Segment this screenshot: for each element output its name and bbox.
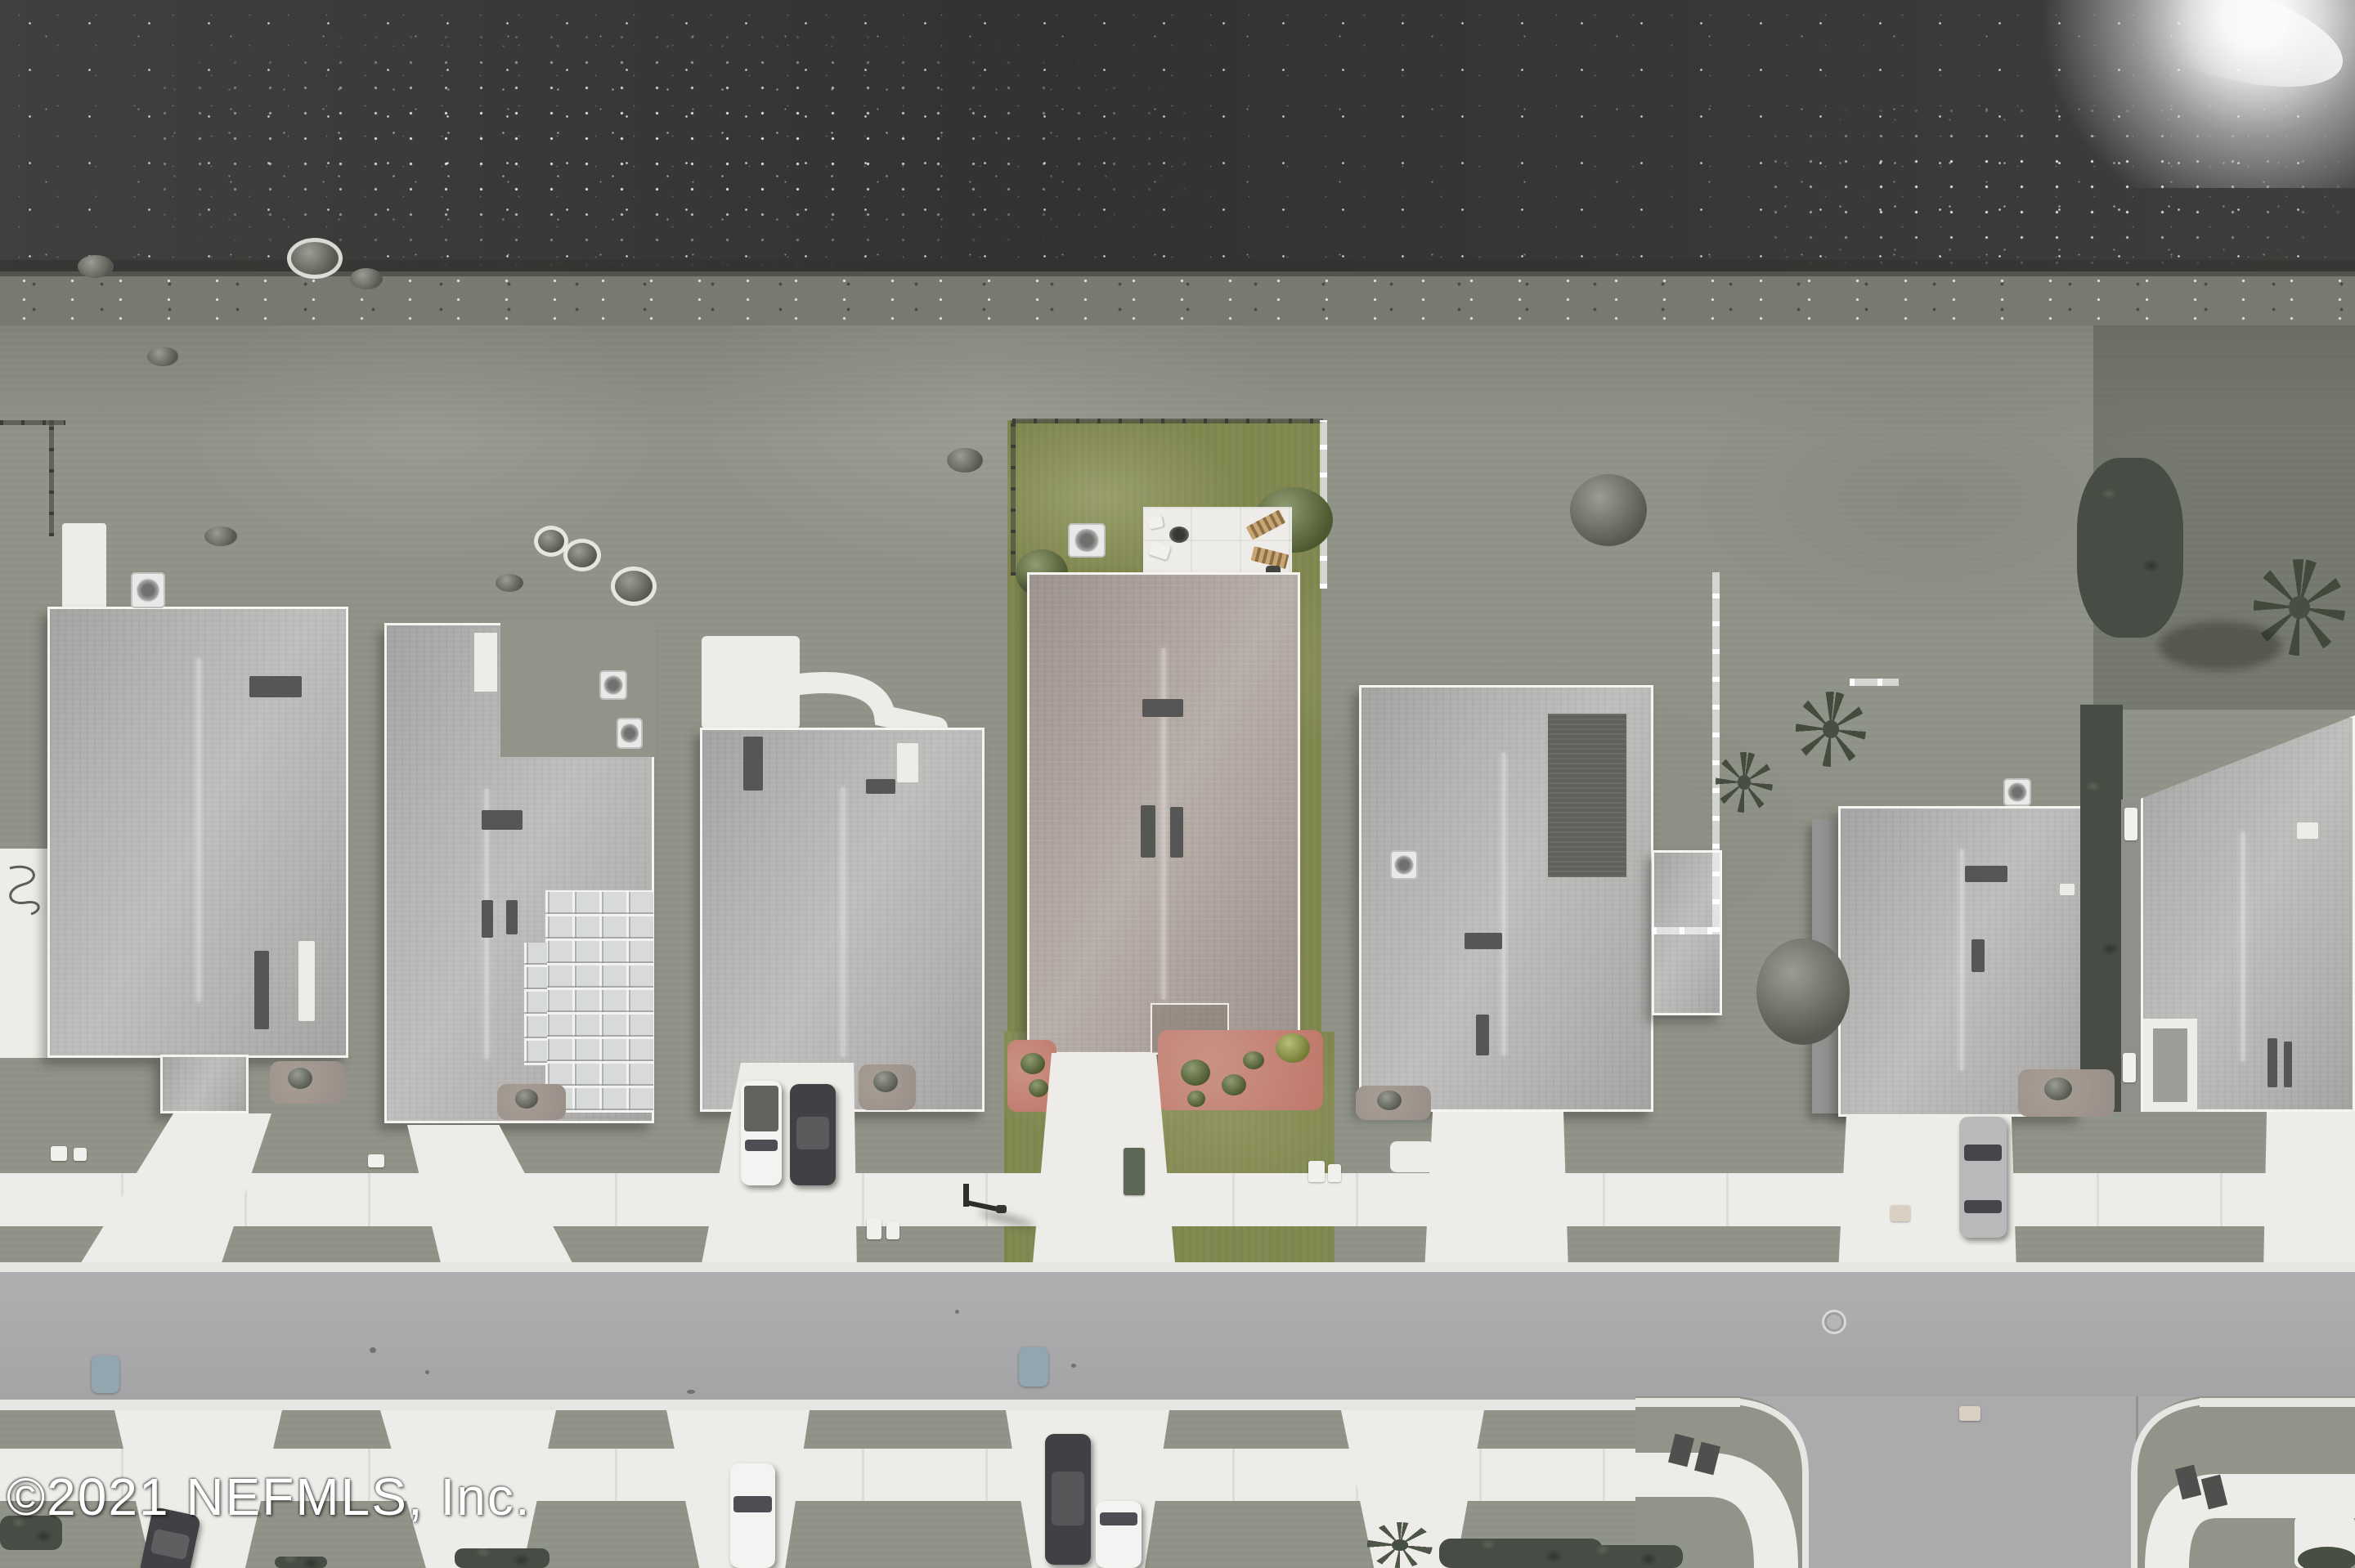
solar-panel-column	[524, 943, 547, 1065]
front-shrub	[1187, 1091, 1205, 1107]
front-shrub-muted	[2044, 1077, 2072, 1100]
utility-cabinet	[1124, 1148, 1145, 1195]
fire-pit	[1169, 526, 1189, 543]
water-sun-glint	[147, 25, 1210, 270]
windshield	[733, 1496, 772, 1512]
garden-hose	[2, 860, 51, 917]
chain-fence-side	[49, 420, 54, 536]
driveway-house-5	[1424, 1112, 1568, 1272]
tee-intersection	[1635, 1396, 2355, 1568]
house-5-side-fence-return	[1652, 927, 1720, 934]
roof-vent	[866, 779, 895, 794]
curb-right	[2200, 1398, 2355, 1407]
car-roof-highlight	[150, 1529, 191, 1560]
roof-vent	[254, 951, 269, 1029]
house-5-ac-unit	[1390, 850, 1418, 880]
hedge-trees-top	[2077, 458, 2183, 638]
shrub	[947, 448, 983, 473]
roof-skylight	[298, 941, 315, 1021]
roof-vent	[1170, 807, 1183, 858]
landscape-circle-shrub	[538, 530, 564, 553]
house-6-ac-unit	[2003, 778, 2031, 806]
bottom-shrub-row	[275, 1557, 327, 1568]
front-shrub	[1029, 1079, 1048, 1097]
road-stain	[955, 1310, 959, 1314]
utility-box	[1328, 1164, 1341, 1182]
windshield	[1964, 1145, 2002, 1161]
landscape-circle-shrub	[291, 242, 339, 275]
palm-tree	[1796, 692, 1866, 767]
front-shrub-bright	[1276, 1033, 1310, 1063]
roof-vent	[2284, 1042, 2292, 1087]
roof-vent	[2268, 1038, 2277, 1087]
skylight-tube	[897, 743, 918, 782]
mls-watermark: ©2021 NEFMLS, Inc.	[7, 1467, 532, 1527]
front-shrub-muted	[515, 1089, 538, 1109]
inset-corner-shadow	[2153, 1028, 2187, 1102]
subject-left-fence	[1011, 420, 1016, 576]
dark-sedan-upper	[790, 1084, 836, 1185]
roof-vent	[249, 676, 302, 697]
utility-box	[886, 1221, 899, 1239]
house-1-roof	[47, 607, 348, 1058]
windshield	[745, 1140, 778, 1151]
truck-bed-cover	[744, 1086, 778, 1131]
roof-ridge	[1502, 753, 1505, 1055]
roof-skylight	[2060, 884, 2075, 895]
roof-skylight	[2297, 822, 2318, 839]
curved-rear-walk-house-3	[777, 646, 965, 736]
house-1-ac-unit	[131, 572, 165, 608]
roof-vent	[482, 810, 523, 830]
blue-bin	[92, 1355, 119, 1393]
house-5-roof	[1359, 685, 1653, 1112]
house-2-chimney	[474, 633, 497, 692]
landscape-circle-shrub	[567, 543, 597, 567]
roof-vent	[1476, 1015, 1489, 1055]
road-stain	[370, 1347, 376, 1353]
subject-house-roof	[1027, 572, 1300, 1055]
front-shrub-muted	[1377, 1091, 1402, 1110]
main-road	[0, 1272, 2355, 1400]
road-stain	[687, 1390, 695, 1394]
house-1-garage-projection	[160, 1055, 249, 1113]
white-car-lower	[730, 1463, 775, 1568]
palm-tree	[1716, 752, 1773, 813]
side-street	[1803, 1396, 2136, 1568]
bottom-shrub-row	[1568, 1545, 1683, 1568]
house-7-side-window	[2124, 808, 2137, 840]
shrub	[496, 574, 523, 592]
palm-shadow	[2159, 621, 2281, 670]
solar-panel-array	[545, 890, 653, 1113]
house-5-side-fence	[1712, 572, 1720, 932]
shrub	[78, 255, 114, 278]
leafy-front-tree	[1756, 939, 1850, 1045]
round-tree	[1570, 474, 1647, 546]
utility-box	[368, 1154, 384, 1167]
roof-vent	[506, 900, 518, 934]
utility-pad	[1891, 1205, 1910, 1221]
front-shrub	[1222, 1074, 1246, 1095]
dark-suv-lower	[1045, 1434, 1091, 1565]
house-2-rear-ac	[599, 670, 627, 700]
roof-vent	[1465, 933, 1502, 949]
bottom-palm	[1367, 1522, 1433, 1568]
house-5-front-walk	[1390, 1141, 1434, 1172]
car-roof-highlight	[796, 1117, 829, 1149]
utility-box	[867, 1218, 881, 1239]
roof-ridge	[197, 658, 200, 1001]
windshield	[1100, 1512, 1137, 1525]
hedge-between-6-and-7	[2080, 705, 2123, 1112]
suv-roof-rails	[1052, 1472, 1084, 1525]
manhole-cover	[1822, 1310, 1846, 1334]
roof-vent	[1141, 805, 1155, 858]
silver-sedan-house-6	[1959, 1117, 2007, 1238]
house-7-side-window	[2123, 1053, 2136, 1082]
aerial-photo-stage: ©2021 NEFMLS, Inc.	[0, 0, 2355, 1568]
utility-box	[74, 1148, 87, 1161]
roof-vent	[1965, 866, 2007, 882]
front-shrub	[1181, 1060, 1210, 1086]
chain-fence-top	[0, 420, 65, 425]
white-pickup-truck	[741, 1081, 782, 1185]
front-shrub	[1243, 1051, 1264, 1069]
road-stain	[425, 1370, 429, 1374]
shrub	[147, 347, 178, 366]
front-shrub-muted	[873, 1071, 898, 1092]
roof-ridge	[841, 787, 845, 1057]
roof-vent	[1142, 699, 1183, 717]
shrub	[350, 268, 383, 289]
shrub	[204, 526, 237, 546]
subject-driveway	[1032, 1053, 1176, 1272]
roof-vent	[1971, 939, 1985, 972]
curb-left	[1635, 1398, 1740, 1407]
driveway-house-7	[2263, 1112, 2355, 1272]
bottom-shrub-row	[455, 1548, 549, 1568]
roof-ridge	[2241, 832, 2245, 1061]
house-2-ac-unit	[617, 718, 643, 749]
walk-path	[793, 683, 937, 728]
hose-line	[10, 867, 38, 914]
utility-pad	[1959, 1406, 1980, 1421]
solar-water-heater	[743, 737, 763, 791]
house-3-roof	[700, 728, 985, 1112]
front-shrub	[1020, 1053, 1045, 1074]
white-van-lower	[1096, 1501, 1142, 1568]
blue-bin	[1019, 1347, 1048, 1387]
house-6-rear-fence-piece	[1850, 679, 1899, 686]
roof-ridge	[1960, 849, 1963, 1070]
subject-rear-fence	[1012, 419, 1323, 423]
front-shrub-muted	[288, 1068, 312, 1089]
utility-box	[51, 1146, 67, 1161]
landscape-circle-shrub	[615, 571, 653, 602]
rear-window	[1964, 1200, 2002, 1213]
roof-vent	[482, 900, 493, 938]
road-stain	[1071, 1364, 1076, 1368]
screened-lanai	[1548, 714, 1626, 877]
subject-ac-pad	[1068, 523, 1106, 558]
utility-box	[1308, 1161, 1325, 1182]
